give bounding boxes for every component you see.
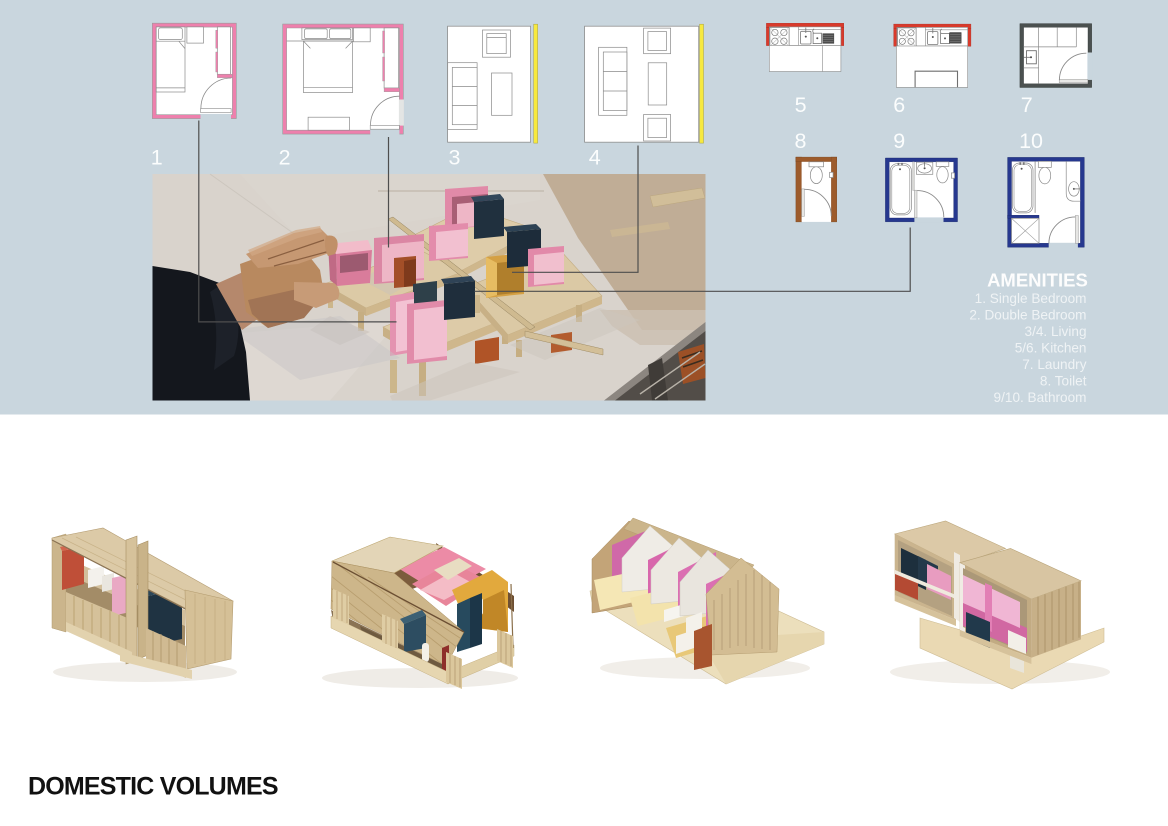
svg-text:7: 7 xyxy=(1021,93,1033,117)
svg-text:1. Single Bedroom: 1. Single Bedroom xyxy=(975,291,1087,306)
svg-text:3/4. Living: 3/4. Living xyxy=(1025,324,1087,339)
svg-text:3: 3 xyxy=(449,146,461,170)
svg-text:AMENITIES: AMENITIES xyxy=(987,269,1088,290)
svg-text:2. Double Bedroom: 2. Double Bedroom xyxy=(969,307,1086,322)
svg-text:4: 4 xyxy=(589,146,601,170)
svg-text:9: 9 xyxy=(893,129,905,153)
svg-text:5: 5 xyxy=(795,93,807,117)
svg-text:7. Laundry: 7. Laundry xyxy=(1022,357,1086,372)
svg-text:8: 8 xyxy=(795,129,807,153)
svg-text:8. Toilet: 8. Toilet xyxy=(1040,373,1087,388)
svg-text:10: 10 xyxy=(1019,129,1043,153)
svg-text:1: 1 xyxy=(151,146,163,170)
svg-text:6: 6 xyxy=(893,93,905,117)
svg-text:9/10. Bathroom: 9/10. Bathroom xyxy=(994,390,1087,405)
svg-text:5/6. Kitchen: 5/6. Kitchen xyxy=(1015,340,1087,355)
svg-text:DOMESTIC VOLUMES: DOMESTIC VOLUMES xyxy=(28,773,278,801)
svg-text:2: 2 xyxy=(279,146,291,170)
